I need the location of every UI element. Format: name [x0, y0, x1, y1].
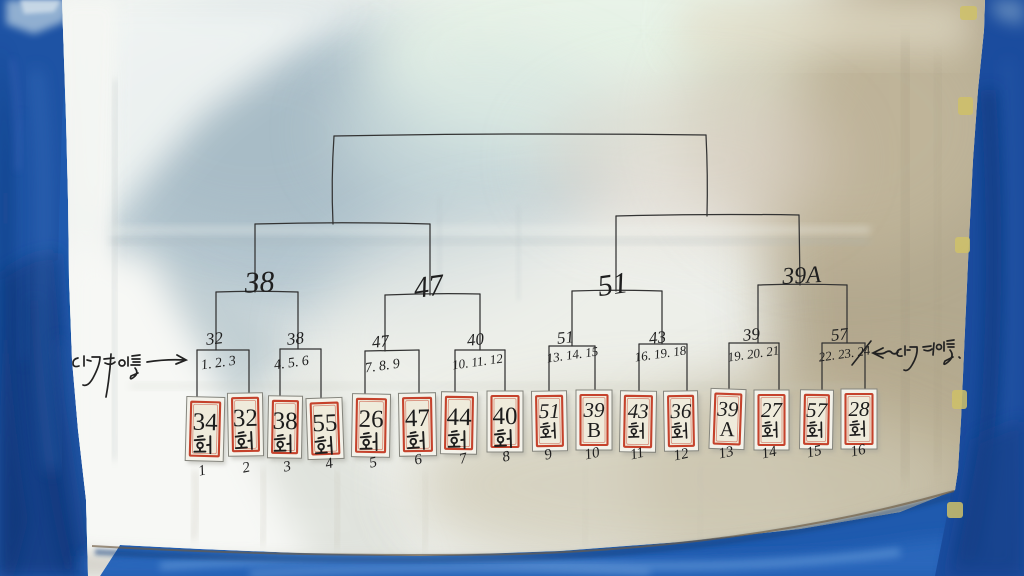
svg-text:40: 40 — [466, 329, 485, 350]
svg-text:51: 51 — [556, 327, 575, 348]
svg-text:51: 51 — [596, 266, 630, 303]
svg-text:36: 36 — [669, 399, 692, 423]
svg-text:38: 38 — [285, 328, 305, 349]
svg-text:27: 27 — [761, 398, 784, 422]
svg-text:47: 47 — [405, 405, 430, 432]
svg-text:A: A — [719, 417, 736, 442]
svg-text:55: 55 — [312, 410, 338, 438]
svg-text:32: 32 — [204, 328, 224, 349]
svg-text:40: 40 — [493, 403, 518, 430]
svg-text:57: 57 — [806, 398, 829, 422]
svg-text:39A: 39A — [781, 262, 822, 290]
svg-text:43: 43 — [627, 399, 648, 423]
svg-text:38: 38 — [243, 265, 276, 300]
svg-text:51: 51 — [539, 399, 560, 423]
svg-text:32: 32 — [233, 405, 258, 432]
svg-text:B: B — [587, 418, 601, 442]
svg-text:26: 26 — [358, 406, 383, 433]
svg-text:39: 39 — [741, 324, 761, 345]
svg-text:34: 34 — [192, 409, 218, 437]
svg-text:44: 44 — [446, 404, 472, 431]
svg-text:28: 28 — [849, 397, 871, 421]
svg-text:38: 38 — [272, 408, 297, 435]
